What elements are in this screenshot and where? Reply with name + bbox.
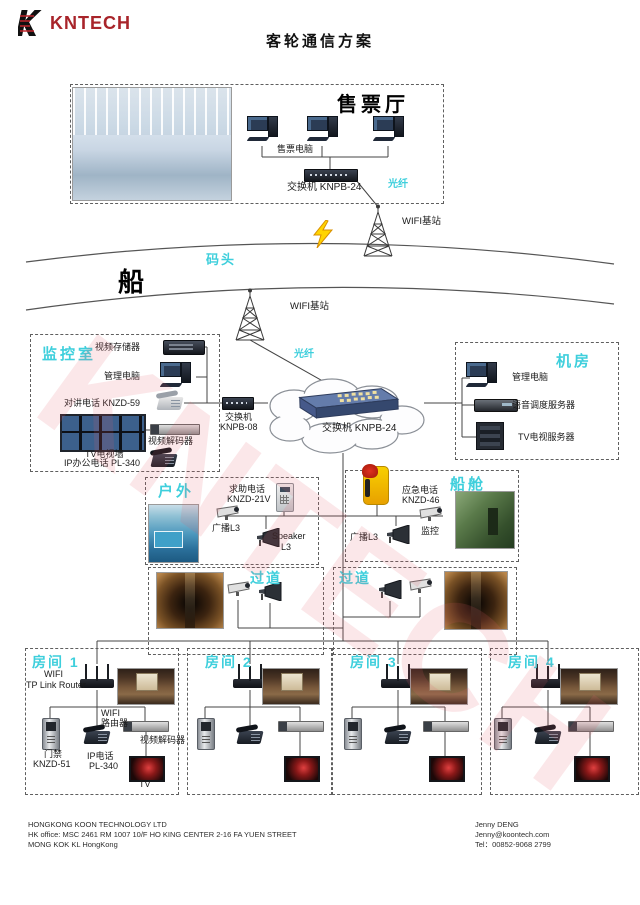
dock-label: 码头: [206, 249, 236, 268]
room1-router-label-1: WIFI: [101, 708, 120, 718]
outdoor-speaker-label-1: Speaker: [272, 531, 306, 541]
emergency-phone-label-2: KNZD-46: [402, 495, 440, 505]
radio-tower-icon: [230, 288, 270, 342]
room4-photo: [560, 668, 618, 705]
room1-door-label-2: KNZD-51: [33, 759, 71, 769]
room1-phone-label-2: PL-340: [89, 761, 118, 771]
cabin-photo: [455, 491, 515, 549]
cctv-camera-icon: [407, 577, 435, 595]
cabin-camera-label: 监控: [421, 526, 439, 536]
machine-room-title: 机房: [556, 350, 592, 371]
room4-title: 房间 4: [508, 652, 556, 672]
monitor-room-title: 监控室: [42, 343, 96, 364]
cabin-broadcast-label: 广播L3: [350, 532, 378, 542]
switch-knpb24-icon: [286, 388, 402, 422]
ship-label: 船: [118, 262, 146, 299]
footer-contact-block: Jenny DENG Jenny@koontech.com Tel：00852-…: [475, 820, 551, 850]
cabin-title: 船舱: [450, 473, 486, 494]
help-phone-label-1: 求助电话: [229, 484, 265, 494]
video-decoder-icon: [278, 721, 324, 732]
machine-mgmt-pc-label: 管理电脑: [512, 372, 548, 382]
door-intercom-icon: [344, 718, 362, 750]
fiber-label-2: 光纤: [294, 349, 314, 361]
network-switch-icon: [304, 169, 358, 182]
room1-decoder-label: 视频解码器: [140, 735, 185, 745]
deck-photo: [148, 504, 199, 563]
door-intercom-icon: [197, 718, 215, 750]
video-decoder-icon: [123, 721, 169, 732]
outdoor-broadcast-label: 广播L3: [212, 523, 240, 533]
outdoor-speaker-label-2: L3: [281, 542, 291, 552]
emergency-phone-label-1: 应急电话: [402, 485, 438, 495]
footer-contact-email: Jenny@koontech.com: [475, 830, 551, 840]
door-intercom-icon: [42, 718, 60, 750]
tv-server-label: TV电视服务器: [518, 432, 575, 442]
intercom-phone-label: 对讲电话 KNZD-59: [64, 398, 140, 408]
ip-phone-icon: [236, 726, 264, 745]
desktop-computer-icon: [307, 116, 341, 144]
ticket-hall-photo: [72, 87, 232, 201]
room1-wifi-label-2: TP Link Router: [26, 680, 86, 690]
room1-door-label-1: 门禁: [44, 749, 62, 759]
ticket-switch-label: 交换机 KNPB-24: [287, 182, 361, 194]
corridor1-title: 过道: [250, 568, 282, 588]
room1-photo: [117, 668, 175, 705]
switch-knpb08-icon: [222, 397, 254, 410]
door-intercom-icon: [494, 718, 512, 750]
tv-icon: [429, 756, 465, 782]
radio-tower-icon: [358, 204, 398, 258]
video-storage-label: 视频存储器: [95, 342, 140, 352]
horn-speaker-icon: [385, 525, 411, 544]
cctv-camera-icon: [225, 580, 253, 598]
desktop-computer-icon: [247, 116, 281, 144]
footer-company-block: HONGKONG KOON TECHNOLOGY LTD HK office: …: [28, 820, 297, 850]
intercom-phone-icon: [156, 392, 184, 411]
monitor-wall: [60, 414, 146, 452]
room1-phone-label-1: IP电话: [87, 751, 114, 761]
help-phone-icon: [276, 483, 294, 512]
corridor2-photo: [444, 571, 508, 630]
wifi-station-label-2: WIFI基站: [290, 302, 329, 313]
room3-photo: [410, 668, 468, 705]
desktop-computer-icon: [160, 362, 194, 390]
mgmt-pc-label: 管理电脑: [104, 371, 140, 381]
switch-knpb08-label-2: KNPB-08: [220, 422, 258, 432]
ip-phone-icon: [83, 726, 111, 745]
help-phone-label-2: KNZD-21V: [227, 494, 271, 504]
ip-phone-icon: [384, 726, 412, 745]
footer-company: HONGKONG KOON TECHNOLOGY LTD: [28, 820, 297, 830]
horn-speaker-icon: [377, 580, 403, 599]
desktop-computer-icon: [373, 116, 407, 144]
video-decoder-icon: [568, 721, 614, 732]
switch-knpb08-label-1: 交换机: [225, 412, 252, 422]
switch-knpb24-label: 交换机 KNPB-24: [322, 423, 396, 435]
diagram-page: KNTECH 客轮通信方案 售票厅 售票电脑 交换机 KNPB-24 光纤 WI…: [0, 0, 640, 905]
video-decoder-label: 视频解码器: [148, 436, 193, 446]
footer-contact-tel: Tel：00852-9068 2799: [475, 840, 551, 850]
tv-icon: [284, 756, 320, 782]
wifi-station-label-1: WIFI基站: [402, 217, 441, 228]
cctv-camera-icon: [417, 505, 445, 523]
video-decoder-icon: [423, 721, 469, 732]
footer-contact-name: Jenny DENG: [475, 820, 551, 830]
room1-tv-label: TV: [139, 779, 151, 789]
video-decoder-icon: [150, 424, 200, 435]
ip-office-phone-icon: [150, 449, 178, 468]
tv-server-icon: [476, 422, 504, 450]
room3-title: 房间 3: [350, 652, 398, 672]
ip-office-phone-label: IP办公电话 PL-340: [64, 458, 140, 468]
corridor2-title: 过道: [339, 568, 371, 588]
page-title: 客轮通信方案: [0, 30, 640, 51]
ticket-hall-title: 售票厅: [337, 88, 409, 117]
footer-address1: HK office: MSC 2461 RM 1007 10/F HO KING…: [28, 830, 297, 840]
tv-icon: [574, 756, 610, 782]
ip-phone-icon: [534, 726, 562, 745]
room2-title: 房间 2: [205, 652, 253, 672]
outdoor-title: 户外: [158, 480, 194, 501]
desktop-computer-icon: [466, 362, 500, 390]
video-storage-icon: [163, 340, 205, 355]
ticket-computers-label: 售票电脑: [277, 144, 313, 154]
footer-address2: MONG KOK KL HongKong: [28, 840, 297, 850]
corridor1-photo: [156, 572, 224, 629]
room2-photo: [262, 668, 320, 705]
lightning-icon: [311, 220, 335, 248]
emergency-phone-icon: [363, 466, 389, 505]
fiber-label-1: 光纤: [388, 179, 408, 191]
room1-wifi-label-1: WIFI: [44, 669, 63, 679]
voice-server-label: 语音调度服务器: [512, 400, 575, 410]
room1-router-label-2: 路由器: [101, 718, 128, 728]
cctv-camera-icon: [214, 504, 242, 522]
